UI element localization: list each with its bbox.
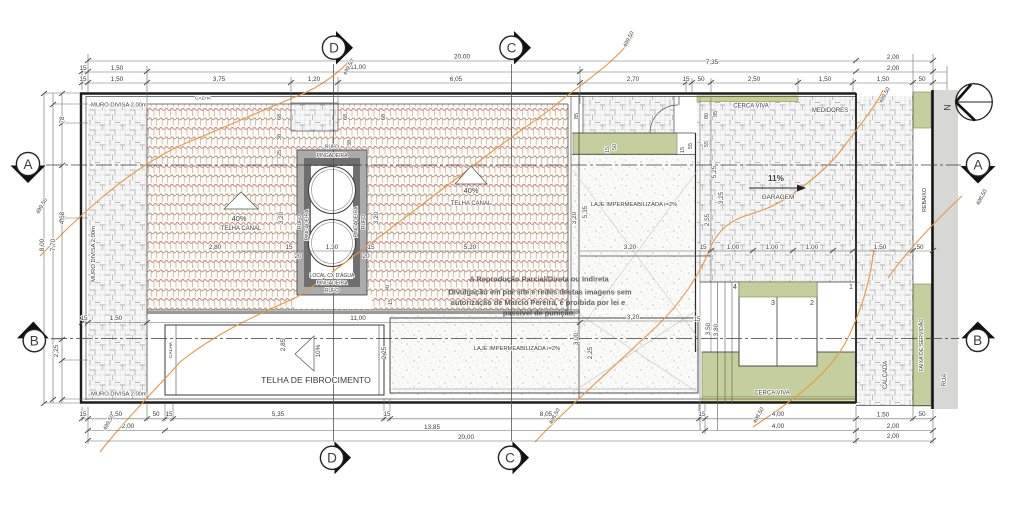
svg-text:RUFO: RUFO <box>297 215 303 229</box>
svg-text:RUFO: RUFO <box>361 215 367 229</box>
svg-text:20,00: 20,00 <box>454 54 470 61</box>
svg-text:passível de punição.: passível de punição. <box>503 309 575 318</box>
svg-text:2,70: 2,70 <box>627 76 640 83</box>
svg-text:1: 1 <box>849 284 853 291</box>
svg-text:3,20: 3,20 <box>624 244 637 251</box>
svg-text:CERCA VIVA: CERCA VIVA <box>754 391 790 397</box>
svg-text:68: 68 <box>343 114 349 120</box>
svg-text:RUFO: RUFO <box>325 145 339 151</box>
svg-text:A: A <box>23 157 32 172</box>
svg-text:4,00: 4,00 <box>772 411 785 418</box>
svg-text:15: 15 <box>693 316 701 323</box>
svg-text:1,50: 1,50 <box>111 76 124 83</box>
svg-text:5,25: 5,25 <box>711 165 718 178</box>
svg-text:7,35: 7,35 <box>706 59 719 66</box>
svg-text:499,50: 499,50 <box>102 414 115 432</box>
svg-text:40%: 40% <box>464 186 479 195</box>
svg-text:40%: 40% <box>232 214 247 223</box>
svg-text:C: C <box>505 451 515 466</box>
svg-text:3: 3 <box>771 300 775 307</box>
svg-text:3,50: 3,50 <box>705 322 712 335</box>
svg-text:15: 15 <box>699 244 707 251</box>
svg-text:20: 20 <box>362 253 370 260</box>
svg-text:10%: 10% <box>315 344 322 357</box>
svg-text:11,00: 11,00 <box>350 315 366 322</box>
svg-text:25: 25 <box>277 150 283 156</box>
svg-text:1,20: 1,20 <box>308 76 321 83</box>
svg-text:autorização de Marcio Pereira,: autorização de Marcio Pereira, é proibid… <box>451 298 626 307</box>
svg-text:2,25: 2,25 <box>381 346 388 359</box>
svg-text:2,00: 2,00 <box>887 65 900 72</box>
svg-text:MURO DIVISA 2,00m: MURO DIVISA 2,00m <box>91 103 147 109</box>
svg-text:3,00: 3,00 <box>573 332 580 345</box>
svg-text:2: 2 <box>810 300 814 307</box>
svg-text:RUA: RUA <box>942 374 948 387</box>
svg-text:1,00: 1,00 <box>727 244 740 251</box>
svg-text:8,00: 8,00 <box>39 238 46 251</box>
svg-text:2,00: 2,00 <box>122 423 135 430</box>
svg-text:1,50: 1,50 <box>874 244 887 251</box>
svg-text:B: B <box>973 333 982 348</box>
svg-text:Divulgação em por site e redes: Divulgação em por site e redes destas im… <box>448 288 632 297</box>
svg-text:4: 4 <box>733 284 737 291</box>
svg-text:498,50: 498,50 <box>752 407 765 425</box>
svg-text:PINGADEIRA: PINGADEIRA <box>305 209 311 241</box>
svg-text:1,50: 1,50 <box>111 65 124 72</box>
svg-text:15: 15 <box>79 76 87 83</box>
svg-text:2,25: 2,25 <box>53 344 60 357</box>
svg-text:2,25: 2,25 <box>587 346 594 359</box>
svg-text:3,20: 3,20 <box>278 211 285 224</box>
svg-text:2,00: 2,00 <box>887 423 900 430</box>
svg-text:5,35: 5,35 <box>272 411 285 418</box>
svg-text:38: 38 <box>277 134 283 140</box>
svg-text:RUFO: RUFO <box>325 288 339 294</box>
svg-text:CALHA: CALHA <box>195 96 212 102</box>
svg-text:CALÇADA: CALÇADA <box>883 361 889 389</box>
svg-text:38: 38 <box>347 140 353 146</box>
svg-text:1,50: 1,50 <box>819 76 832 83</box>
svg-text:78: 78 <box>59 116 66 124</box>
svg-text:D: D <box>327 451 337 466</box>
svg-text:2,85: 2,85 <box>280 338 287 351</box>
svg-text:95: 95 <box>713 111 719 117</box>
svg-text:2,50: 2,50 <box>748 76 761 83</box>
svg-text:13,85: 13,85 <box>424 424 440 431</box>
svg-text:15: 15 <box>682 76 690 83</box>
svg-text:MEDIDORES: MEDIDORES <box>812 108 848 114</box>
svg-text:TELHA CANAL: TELHA CANAL <box>221 226 262 232</box>
svg-text:2,80: 2,80 <box>209 244 222 251</box>
svg-text:1,00: 1,00 <box>806 244 819 251</box>
svg-text:3,20: 3,20 <box>571 211 578 224</box>
svg-text:3,25: 3,25 <box>718 191 725 204</box>
svg-text:3,80: 3,80 <box>713 323 720 336</box>
svg-text:15: 15 <box>383 411 391 418</box>
svg-text:TELHA CANAL: TELHA CANAL <box>451 201 492 207</box>
svg-text:PINGADEIRA: PINGADEIRA <box>354 206 360 238</box>
svg-text:2,00: 2,00 <box>887 433 900 440</box>
svg-text:CERCA VIVA: CERCA VIVA <box>733 104 769 110</box>
svg-text:499,50: 499,50 <box>35 198 49 216</box>
svg-text:1,50: 1,50 <box>877 412 890 419</box>
svg-text:55: 55 <box>704 141 710 147</box>
svg-text:499,50: 499,50 <box>622 31 635 49</box>
svg-text:B: B <box>30 333 39 348</box>
svg-text:1,30: 1,30 <box>326 244 339 251</box>
svg-text:PINGADEIRA: PINGADEIRA <box>317 281 349 287</box>
svg-text:20: 20 <box>294 253 302 260</box>
svg-text:3,20: 3,20 <box>373 211 380 224</box>
svg-text:15: 15 <box>605 147 611 153</box>
svg-text:D: D <box>329 41 339 56</box>
svg-text:3,75: 3,75 <box>213 76 226 83</box>
svg-text:N: N <box>943 104 953 111</box>
svg-text:MURO DIVISA 2,00m: MURO DIVISA 2,00m <box>91 226 97 282</box>
svg-text:85: 85 <box>574 113 580 119</box>
svg-text:C: C <box>507 41 517 56</box>
svg-text:20,00: 20,00 <box>458 434 474 441</box>
svg-text:3,20: 3,20 <box>627 314 640 321</box>
svg-text:80: 80 <box>704 113 710 119</box>
svg-text:15: 15 <box>80 315 88 322</box>
svg-text:GARAGEM: GARAGEM <box>762 194 795 201</box>
svg-text:15: 15 <box>79 65 87 72</box>
svg-text:2,55: 2,55 <box>704 213 711 226</box>
svg-text:A Reprodução Parcial/Direta ou: A Reprodução Parcial/Direta ou Indireta <box>469 275 609 284</box>
svg-text:68: 68 <box>277 114 283 120</box>
svg-text:68: 68 <box>381 114 387 120</box>
svg-text:5,35: 5,35 <box>582 205 589 218</box>
svg-text:4,00: 4,00 <box>772 423 785 430</box>
svg-text:15: 15 <box>388 299 394 305</box>
svg-text:15: 15 <box>165 411 173 418</box>
svg-text:1,50: 1,50 <box>110 315 123 322</box>
svg-text:50: 50 <box>918 411 926 418</box>
svg-text:55: 55 <box>688 143 694 149</box>
svg-text:1,00: 1,00 <box>766 244 779 251</box>
svg-text:LAJE IMPERMEABILIZADA i=2%: LAJE IMPERMEABILIZADA i=2% <box>591 202 678 208</box>
svg-text:50: 50 <box>612 144 618 150</box>
svg-text:4,68: 4,68 <box>59 211 66 224</box>
svg-text:15: 15 <box>285 244 293 251</box>
svg-text:15: 15 <box>79 411 87 418</box>
svg-text:FAIXA DE SERVIDÃO: FAIXA DE SERVIDÃO <box>918 318 925 371</box>
svg-text:LOCAL CX D'ÁGUA: LOCAL CX D'ÁGUA <box>310 272 355 279</box>
svg-text:50: 50 <box>916 244 924 251</box>
svg-text:498,50: 498,50 <box>975 189 988 207</box>
svg-text:15: 15 <box>698 411 706 418</box>
svg-text:6,05: 6,05 <box>450 76 463 83</box>
svg-text:5,20: 5,20 <box>464 244 477 251</box>
svg-text:LAJE IMPERMEABILIZADA i=2%: LAJE IMPERMEABILIZADA i=2% <box>474 346 561 352</box>
svg-text:TELHA DE FIBROCIMENTO: TELHA DE FIBROCIMENTO <box>261 375 371 385</box>
svg-text:A: A <box>973 157 982 172</box>
svg-text:40: 40 <box>385 285 391 291</box>
svg-text:50: 50 <box>918 76 926 83</box>
svg-text:MURO DIVISA 2,00m: MURO DIVISA 2,00m <box>91 392 147 398</box>
svg-text:REBAIXO: REBAIXO <box>922 188 928 212</box>
svg-text:50: 50 <box>152 411 160 418</box>
svg-text:1,50: 1,50 <box>877 76 890 83</box>
svg-text:PINGADEIRA: PINGADEIRA <box>317 153 349 159</box>
svg-text:2,00: 2,00 <box>887 54 900 61</box>
svg-text:11%: 11% <box>768 174 785 183</box>
svg-text:7,70: 7,70 <box>50 238 57 251</box>
svg-text:50: 50 <box>697 76 705 83</box>
svg-text:CALHA: CALHA <box>168 341 174 358</box>
svg-text:15: 15 <box>680 147 686 153</box>
svg-text:15: 15 <box>367 244 375 251</box>
